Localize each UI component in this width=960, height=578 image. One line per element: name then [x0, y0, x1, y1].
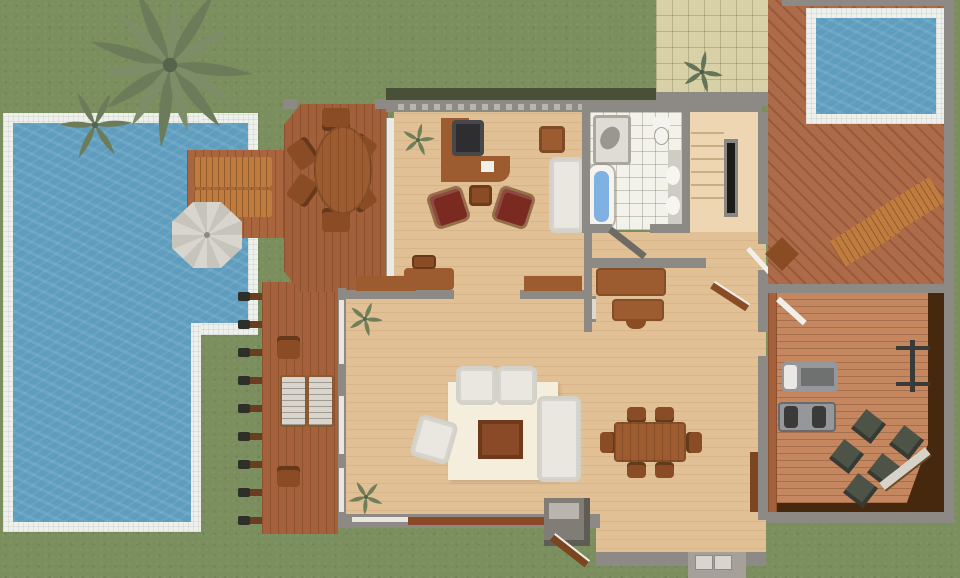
- wall-east: [758, 112, 768, 244]
- wall-bathroom-east: [682, 112, 690, 232]
- dining-chair: [627, 462, 646, 478]
- white-armchair: [496, 366, 537, 405]
- sun-lounger: [194, 157, 272, 187]
- wing-frame-top: [782, 0, 954, 6]
- plunge-pool-water: [816, 18, 936, 114]
- treadmill-belt: [801, 368, 834, 386]
- window-west: [339, 468, 344, 512]
- pergola-chair: [277, 466, 300, 487]
- office-chair: [452, 120, 484, 156]
- dining-chair: [627, 407, 646, 423]
- dining-chair: [655, 407, 674, 423]
- entry-step: [714, 555, 732, 570]
- study-cabinet: [539, 126, 565, 153]
- console-item: [412, 255, 436, 269]
- corner-desk: [441, 156, 510, 182]
- plant-icon: [344, 298, 386, 340]
- stair-tread: [691, 132, 724, 134]
- window-sill-mosaic: [398, 104, 582, 110]
- stair-railing-core: [727, 143, 735, 213]
- stair-tread: [691, 171, 724, 173]
- patio-plant-icon: [678, 48, 726, 96]
- toilet-bowl: [655, 128, 668, 144]
- wall-kitchen-west: [584, 232, 592, 332]
- sliding-door-west: [386, 118, 394, 292]
- planter-sill: [408, 517, 544, 525]
- wing-frame-east: [944, 0, 954, 522]
- deck-oval-table: [314, 126, 372, 214]
- wall-study-south: [340, 290, 454, 299]
- vanity-counter: [668, 150, 682, 230]
- desk-paper: [481, 161, 494, 172]
- plant-icon: [398, 120, 438, 160]
- wall-east: [758, 270, 768, 332]
- pergola-lounger: [280, 375, 307, 427]
- sink: [666, 166, 680, 185]
- pergola-chair: [277, 336, 300, 359]
- stair-tread: [691, 145, 724, 147]
- kitchen-island: [612, 299, 664, 321]
- stair-tread: [691, 158, 724, 160]
- weight-plates: [784, 406, 798, 428]
- window-west: [339, 300, 344, 364]
- weight-plates: [812, 406, 826, 428]
- window-sill-south: [352, 517, 408, 522]
- gym-deck-strip: [768, 293, 777, 517]
- dining-chair: [686, 432, 702, 453]
- treadmill-console: [784, 365, 797, 389]
- wing-wall: [768, 284, 952, 293]
- sink: [666, 196, 680, 215]
- stair-tread: [691, 197, 724, 199]
- living-sofa: [537, 396, 581, 482]
- study-side-table: [469, 185, 492, 206]
- coffee-table: [478, 420, 523, 459]
- main-pool-water-tall: [13, 123, 191, 522]
- plant-icon: [344, 476, 388, 518]
- wall-bathroom-west: [582, 112, 590, 232]
- wall-bathroom-south: [650, 224, 690, 233]
- white-armchair: [456, 366, 497, 405]
- floor-plan-scene: [0, 0, 960, 578]
- wall-study-south: [520, 290, 586, 299]
- dining-chair: [655, 462, 674, 478]
- dining-table: [614, 422, 686, 462]
- entry-step: [695, 555, 713, 570]
- kitchen-counter: [596, 268, 666, 296]
- kitchen-wall: [592, 258, 706, 268]
- sideboard: [356, 276, 416, 291]
- palm-tree-small-icon: [55, 85, 135, 165]
- bathtub-water: [594, 171, 609, 222]
- wall-east: [758, 356, 768, 520]
- sideboard: [524, 276, 582, 291]
- study-sofa: [549, 157, 584, 233]
- deck-post: [284, 99, 297, 109]
- pergola-lounger: [307, 375, 334, 427]
- stair-tread: [691, 184, 724, 186]
- barbell-upright: [910, 340, 915, 392]
- wing-frame-south: [766, 512, 954, 523]
- chimney-top: [549, 503, 579, 519]
- window-west: [339, 396, 344, 454]
